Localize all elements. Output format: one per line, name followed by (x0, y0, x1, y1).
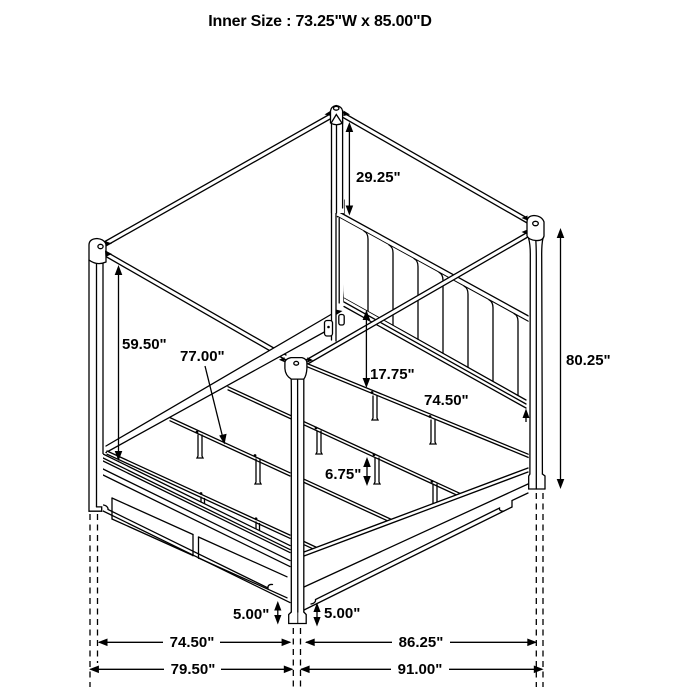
svg-text:59.50": 59.50" (122, 336, 167, 353)
svg-text:80.25": 80.25" (566, 352, 611, 369)
svg-text:17.75": 17.75" (370, 366, 415, 383)
svg-text:6.75": 6.75" (325, 466, 361, 483)
svg-text:74.50": 74.50" (424, 392, 469, 409)
svg-text:29.25": 29.25" (356, 169, 401, 186)
svg-text:Inner Size : 73.25"W x 85.00"D: Inner Size : 73.25"W x 85.00"D (208, 13, 432, 30)
svg-text:86.25": 86.25" (399, 634, 444, 651)
svg-text:74.50": 74.50" (170, 634, 215, 651)
svg-text:91.00": 91.00" (398, 661, 443, 678)
svg-text:77.00": 77.00" (180, 348, 225, 365)
svg-text:79.50": 79.50" (171, 661, 216, 678)
svg-text:5.00": 5.00" (324, 605, 360, 622)
svg-text:5.00": 5.00" (233, 606, 269, 623)
